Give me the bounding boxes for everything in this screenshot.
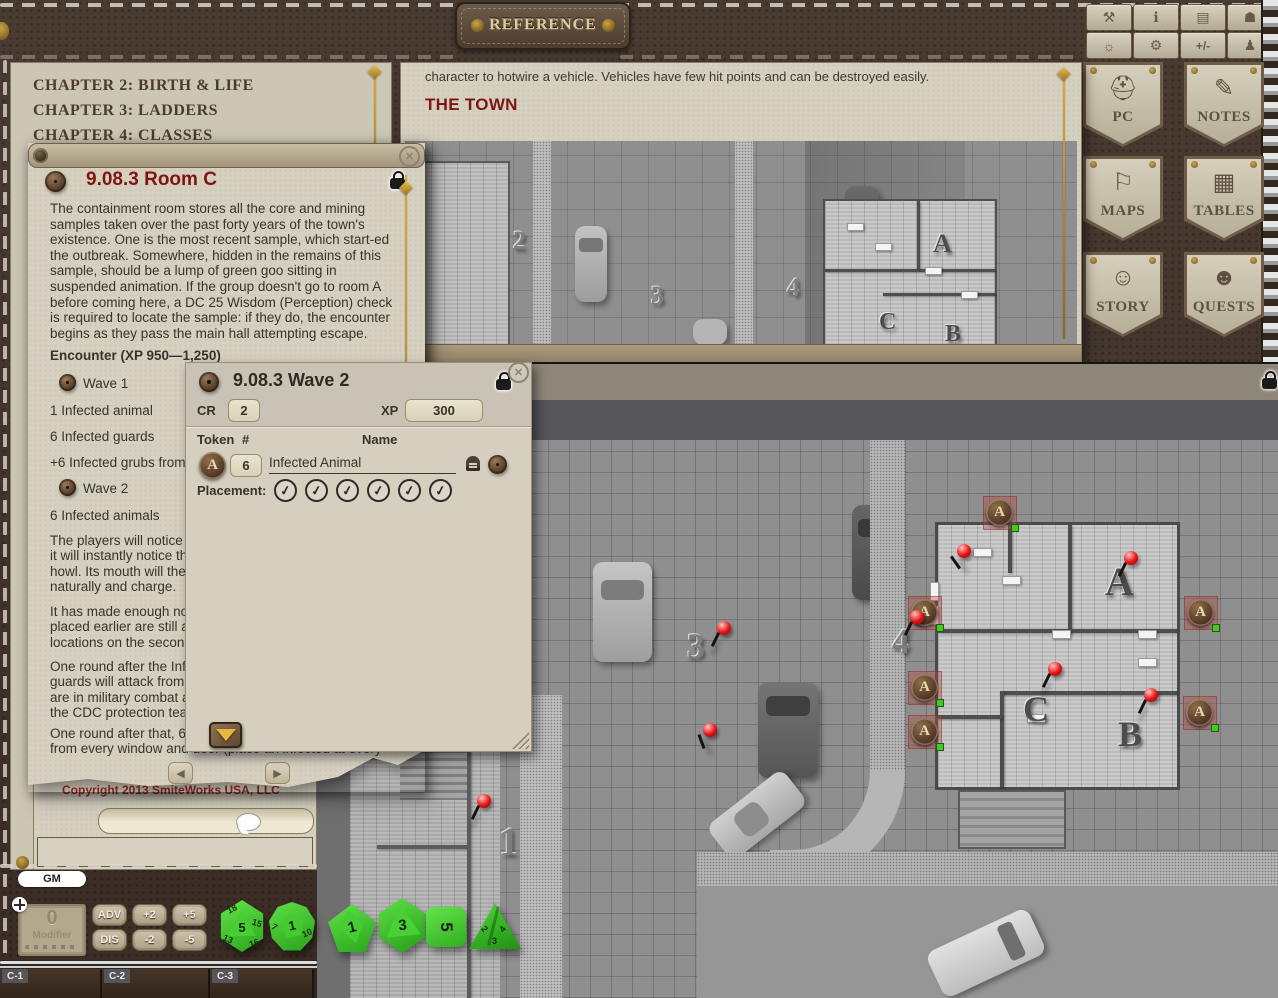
grommet: [16, 856, 29, 869]
map-building-left: [416, 161, 510, 345]
hotkey-tab-c3[interactable]: C-3: [212, 969, 238, 983]
placement-check[interactable]: ✓: [427, 477, 454, 504]
tools-icon[interactable]: ⚒: [1086, 4, 1132, 31]
theater-masks-icon: ☻: [1184, 264, 1264, 292]
wave2-link[interactable]: Wave 2: [83, 481, 128, 496]
close-icon[interactable]: ✕: [399, 146, 420, 167]
party-info-icon[interactable]: ℹ: [1133, 4, 1179, 31]
scrollbar-finial: [368, 65, 382, 79]
lock-icon[interactable]: [1262, 371, 1277, 390]
story-paragraph: character to hotwire a vehicle. Vehicles…: [425, 69, 1045, 84]
d20-die[interactable]: 5 18 13 15 16: [219, 900, 265, 952]
xp-field[interactable]: 300: [405, 399, 483, 422]
sidebar-label: PC: [1083, 109, 1163, 126]
quill-icon: ✎: [1184, 74, 1264, 103]
modifier-value: 0: [20, 907, 84, 930]
d6-die[interactable]: 5: [426, 907, 466, 947]
helmet-icon: ⛑: [1083, 74, 1163, 103]
npc-name-field[interactable]: Infected Animal: [269, 455, 456, 474]
app-window: REFERENCE ⚒ ℹ ▤ ☗ ☼ ⚙ +/- ♟ ⛑ PC ✎ NOTES…: [0, 0, 1278, 998]
story-hscrollbar[interactable]: [401, 344, 1081, 363]
npc-token[interactable]: A: [199, 452, 226, 479]
map-car-sedan: [758, 682, 818, 778]
chapter-item[interactable]: CHAPTER 2: BIRTH & LIFE: [33, 77, 254, 95]
encounter-item: 6 Infected animals: [50, 508, 160, 523]
door-marker: [875, 243, 892, 251]
room-label-a: A: [933, 229, 952, 259]
room-c-titlebar[interactable]: ✕: [28, 143, 425, 168]
sidebar-label: TABLES: [1184, 203, 1264, 220]
chat-entry-box[interactable]: [37, 837, 313, 867]
map-building-right: [823, 199, 997, 345]
close-icon[interactable]: ✕: [508, 362, 529, 383]
door-marker: [1138, 630, 1157, 639]
modifiers-icon[interactable]: +/-: [1180, 32, 1226, 59]
map-pin[interactable]: [468, 794, 496, 824]
encounter-item: 1 Infected animal: [50, 403, 153, 418]
plus5-button[interactable]: +5: [172, 904, 207, 926]
token-infected-animal[interactable]: A: [983, 496, 1017, 530]
token-infected-animal[interactable]: A: [908, 715, 942, 749]
col-count: #: [242, 432, 249, 447]
map-icon: ⚐: [1083, 168, 1163, 197]
modifier-dots: [25, 945, 79, 949]
dis-button[interactable]: DIS: [92, 929, 127, 951]
street-label-4: 4: [787, 273, 800, 303]
room-label-b: B: [1118, 713, 1142, 755]
helmet-icon[interactable]: [466, 456, 480, 471]
placement-check[interactable]: ✓: [272, 477, 299, 504]
d12-die[interactable]: 1 7 10: [268, 902, 316, 952]
sidebar-label: QUESTS: [1184, 299, 1264, 316]
room-c-title: 9.08.3 Room C: [86, 169, 217, 191]
map-pin[interactable]: [1115, 551, 1143, 581]
d4-die[interactable]: 2 4 3: [468, 902, 522, 950]
encounter-heading: Encounter (XP 950—1,250): [50, 348, 221, 363]
rivet: [1090, 67, 1097, 74]
wave2-title: 9.08.3 Wave 2: [233, 370, 349, 391]
wave2-shield-icon[interactable]: [59, 479, 76, 496]
map-car: [575, 226, 607, 302]
resize-grip[interactable]: [512, 732, 529, 749]
plus2-button[interactable]: +2: [132, 904, 167, 926]
street-label-3: 3: [651, 281, 664, 311]
story-shield-icon[interactable]: [45, 171, 66, 192]
d10-die[interactable]: 1: [328, 904, 376, 952]
rivet: [1149, 67, 1156, 74]
hotkey-tab-c2[interactable]: C-2: [104, 969, 130, 983]
reference-title: REFERENCE: [457, 16, 629, 34]
placement-check[interactable]: ✓: [303, 477, 330, 504]
room-label-c: C: [879, 309, 896, 336]
room-label-b: B: [945, 321, 961, 345]
door-marker: [1052, 630, 1071, 639]
sidebar-item-story[interactable]: ☺ STORY: [1083, 252, 1163, 337]
story-window: character to hotwire a vehicle. Vehicles…: [400, 62, 1082, 364]
map-car-light: [593, 562, 652, 662]
wave2-window: 9.08.3 Wave 2 ✕ CR 2 XP 300 Token # Name…: [185, 362, 532, 752]
chat-input[interactable]: [98, 808, 314, 834]
door-marker: [961, 291, 978, 299]
placement-check[interactable]: ✓: [365, 477, 392, 504]
map-pin[interactable]: [708, 621, 736, 651]
speech-bubble-icon[interactable]: [236, 813, 261, 831]
placement-check[interactable]: ✓: [396, 477, 423, 504]
town-map-preview[interactable]: A C B 2 3 4: [405, 141, 1077, 345]
room-c-paragraph: The players will notice arit will instan…: [50, 533, 199, 595]
sidebar-item-notes[interactable]: ✎ NOTES: [1184, 62, 1264, 147]
top-edge-stitching2: [620, 55, 1080, 59]
door-marker: [925, 267, 942, 275]
room-c-paragraph: The containment room stores all the core…: [50, 201, 400, 341]
minus2-button[interactable]: -2: [132, 929, 167, 951]
titlebar-knob[interactable]: [33, 148, 48, 163]
map-truck: [693, 319, 727, 345]
d8-die[interactable]: 3: [377, 898, 427, 953]
count-field[interactable]: 6: [230, 454, 262, 477]
sidebar-label: NOTES: [1184, 109, 1264, 126]
xp-label: XP: [381, 403, 398, 418]
adv-button[interactable]: ADV: [92, 904, 127, 926]
desk-stitching: [0, 864, 317, 868]
street-label-2: 2: [513, 226, 526, 256]
hotkey-bar: C-1 C-2 C-3: [0, 960, 317, 998]
cr-label: CR: [197, 403, 216, 418]
npc-link-shield-icon[interactable]: [488, 455, 507, 474]
map-pin[interactable]: [1039, 662, 1067, 692]
door-marker: [1002, 576, 1021, 585]
options-gear-icon[interactable]: ⚙: [1133, 32, 1179, 59]
room-label-c: C: [1023, 688, 1049, 730]
chapter-item[interactable]: CHAPTER 3: LADDERS: [33, 102, 218, 120]
col-name: Name: [362, 432, 397, 447]
door-marker: [1138, 658, 1157, 667]
reference-plaque: REFERENCE: [455, 2, 631, 50]
sidebar-item-pc[interactable]: ⛑ PC: [1083, 62, 1163, 147]
street-label-3: 3: [687, 625, 705, 667]
sidebar-label: MAPS: [1083, 203, 1163, 220]
sidebar-item-maps[interactable]: ⚐ MAPS: [1083, 156, 1163, 241]
gm-identity-label[interactable]: GM: [18, 871, 86, 887]
scroll-icon: ▦: [1184, 168, 1264, 197]
room-c-paragraph: One round after the Infeguards will atta…: [50, 659, 199, 721]
library-icon[interactable]: ▤: [1180, 4, 1226, 31]
placement-label: Placement:: [197, 483, 266, 498]
targeting-crosshair-icon[interactable]: [12, 897, 27, 912]
token-infected-animal[interactable]: A: [908, 671, 942, 705]
minus5-button[interactable]: -5: [172, 929, 207, 951]
token-infected-animal[interactable]: A: [1183, 696, 1217, 730]
sidebar-item-tables[interactable]: ▦ TABLES: [1184, 156, 1264, 241]
street-label-1: 1: [499, 818, 519, 865]
placement-check[interactable]: ✓: [334, 477, 361, 504]
col-token: Token: [197, 432, 234, 447]
prev-page-button[interactable]: ◀: [168, 762, 193, 784]
map-pin[interactable]: [901, 610, 929, 640]
next-page-button[interactable]: ▶: [265, 762, 290, 784]
encounter-item: 6 Infected guards: [50, 429, 154, 444]
scrollbar-finial: [1057, 67, 1071, 81]
sidebar-label: STORY: [1083, 299, 1163, 316]
encounter-shield-icon[interactable]: [199, 372, 219, 392]
room-c-paragraph: It has made enough noiseplaced earlier a…: [50, 604, 205, 650]
modifier-box[interactable]: 0 Modifier: [18, 904, 86, 956]
modifier-label: Modifier: [20, 930, 84, 941]
left-stitching: [3, 60, 7, 995]
wave1-link[interactable]: Wave 1: [83, 376, 128, 391]
sidebar-item-quests[interactable]: ☻ QUESTS: [1184, 252, 1264, 337]
theater-masks-icon: ☺: [1083, 264, 1163, 292]
story-scrollbar[interactable]: [1063, 77, 1065, 339]
encounter-item: +6 Infected grubs from o: [50, 455, 197, 470]
placement-checks: ✓ ✓ ✓ ✓ ✓ ✓: [274, 479, 452, 502]
top-toolbar: ⚒ ℹ ▤ ☗ ☼ ⚙ +/- ♟: [1086, 4, 1272, 57]
day-night-icon[interactable]: ☼: [1086, 32, 1132, 59]
hotkey-tab-c1[interactable]: C-1: [2, 969, 28, 983]
map-pin[interactable]: [1135, 688, 1163, 718]
wave1-shield-icon[interactable]: [59, 374, 76, 391]
token-infected-animal[interactable]: A: [1184, 596, 1218, 630]
top-edge-stitching: [0, 55, 460, 59]
cr-field[interactable]: 2: [228, 399, 260, 422]
share-envelope-button[interactable]: [209, 722, 242, 748]
map-pin[interactable]: [948, 544, 976, 574]
corner-knob: [0, 22, 9, 40]
door-marker: [847, 223, 864, 231]
porch-steps: [958, 790, 1066, 849]
map-pin[interactable]: [694, 723, 722, 753]
story-heading: THE TOWN: [425, 95, 518, 115]
